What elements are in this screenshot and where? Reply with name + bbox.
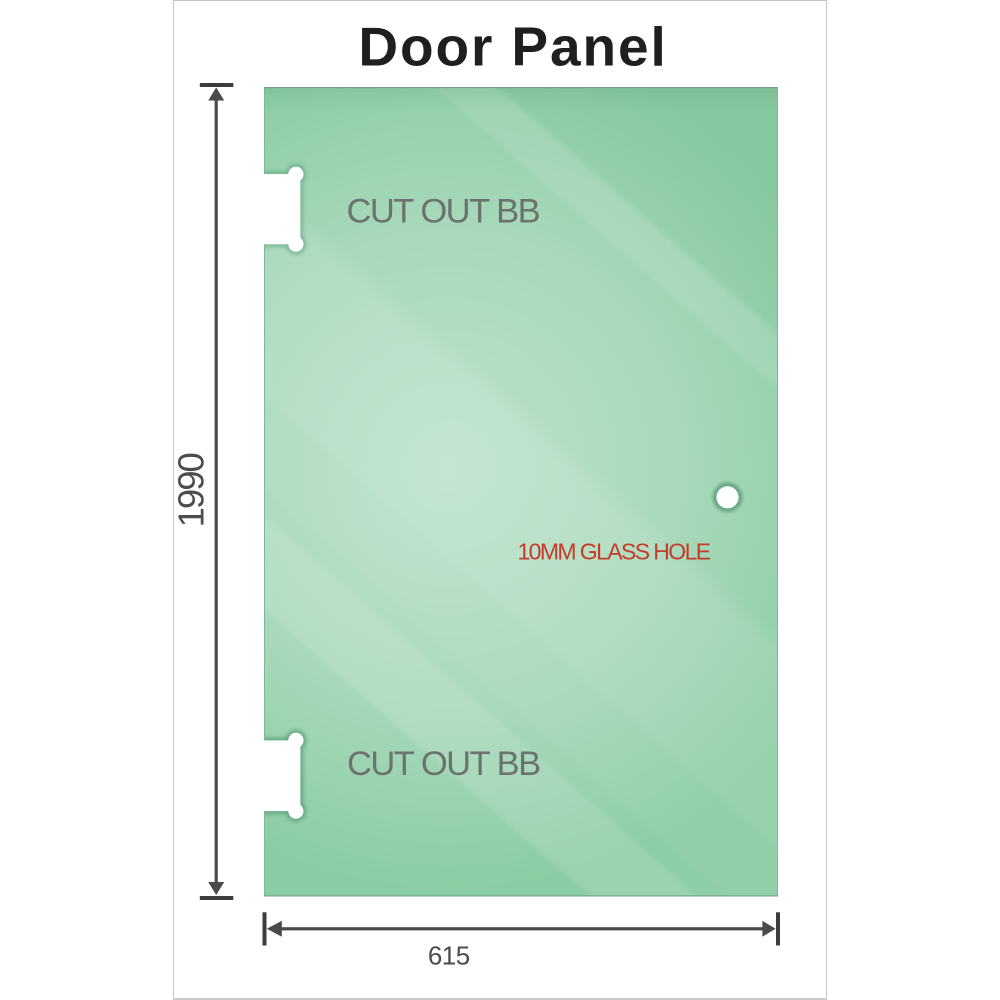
svg-text:10MM GLASS HOLE: 10MM GLASS HOLE: [517, 539, 710, 565]
svg-text:615: 615: [428, 941, 470, 971]
svg-text:Door Panel: Door Panel: [358, 16, 667, 78]
svg-text:CUT OUT BB: CUT OUT BB: [346, 193, 539, 231]
svg-text:1990: 1990: [171, 454, 212, 528]
svg-text:CUT OUT BB: CUT OUT BB: [347, 745, 540, 783]
